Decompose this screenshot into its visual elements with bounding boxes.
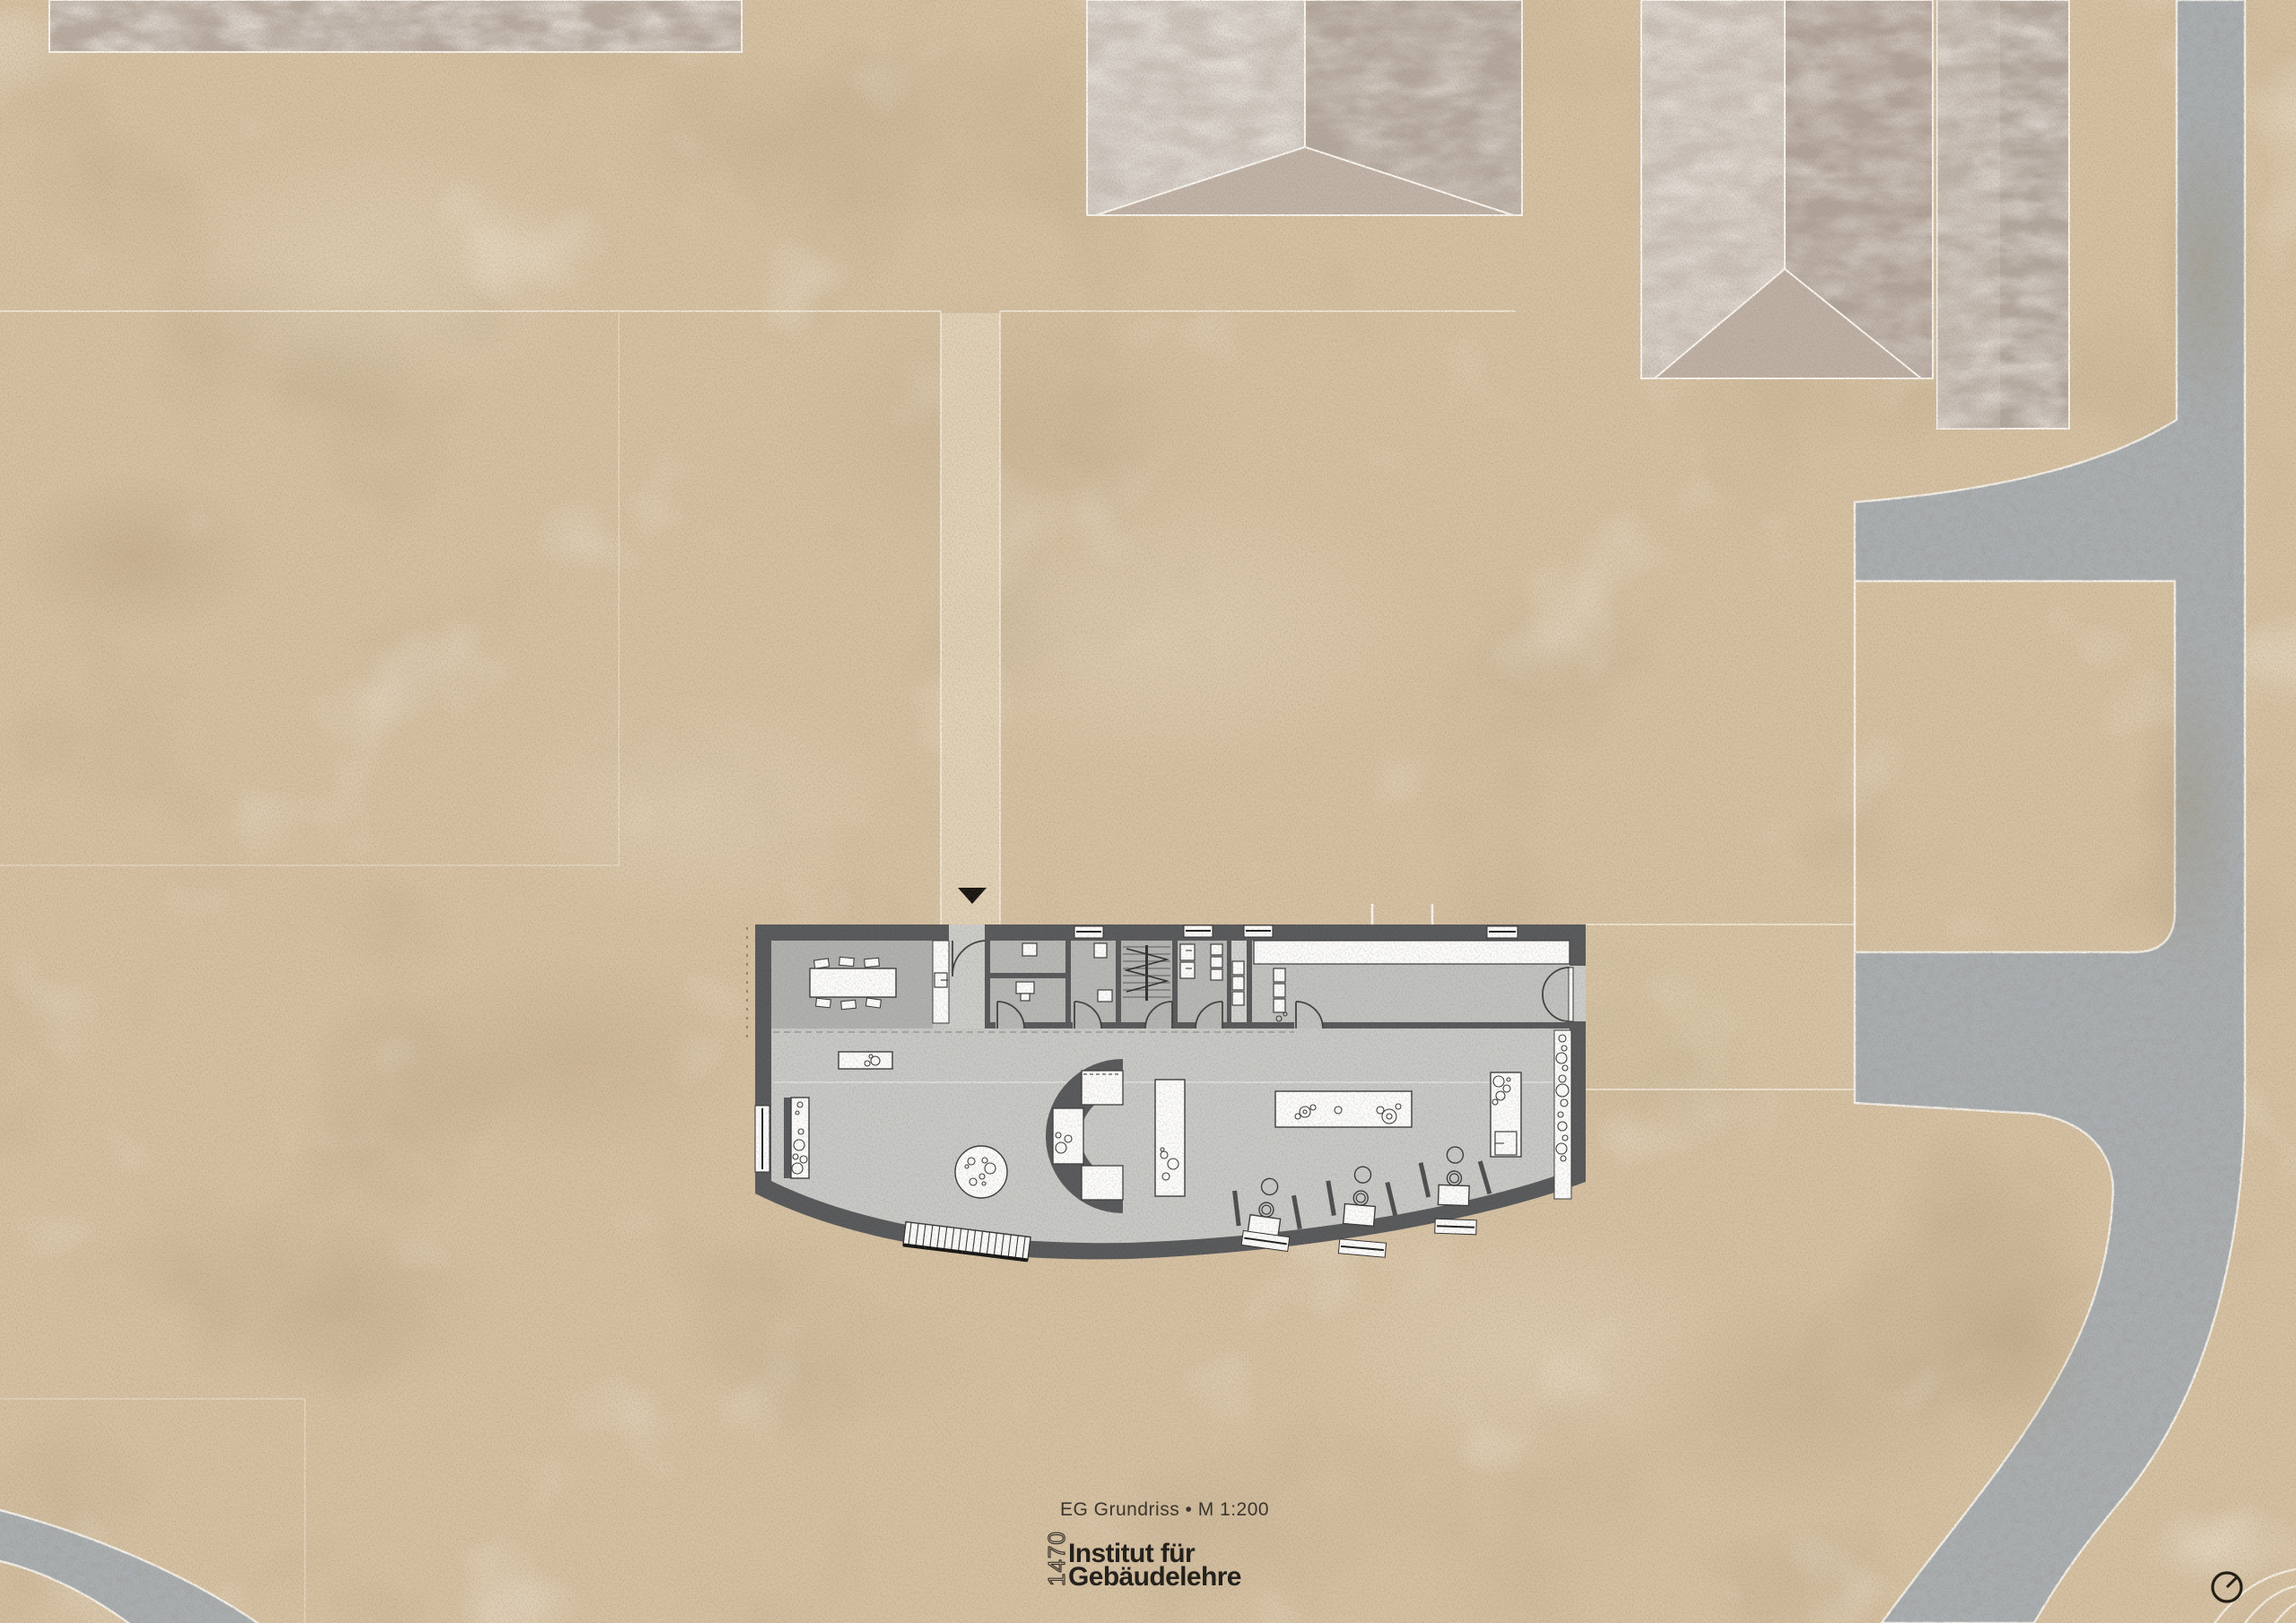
site-plan: EG Grundriss • M 1:200 1470 Institut für… <box>0 0 2296 1623</box>
plan-caption: EG Grundriss • M 1:200 <box>1060 1499 1269 1520</box>
logo-line2: Gebäudelehre <box>1068 1562 1241 1592</box>
site-plan-canvas: EG Grundriss • M 1:200 1470 Institut für… <box>0 0 2296 1623</box>
logo-number: 1470 <box>1043 1531 1070 1586</box>
paper-grain-overlay <box>0 0 2296 1623</box>
